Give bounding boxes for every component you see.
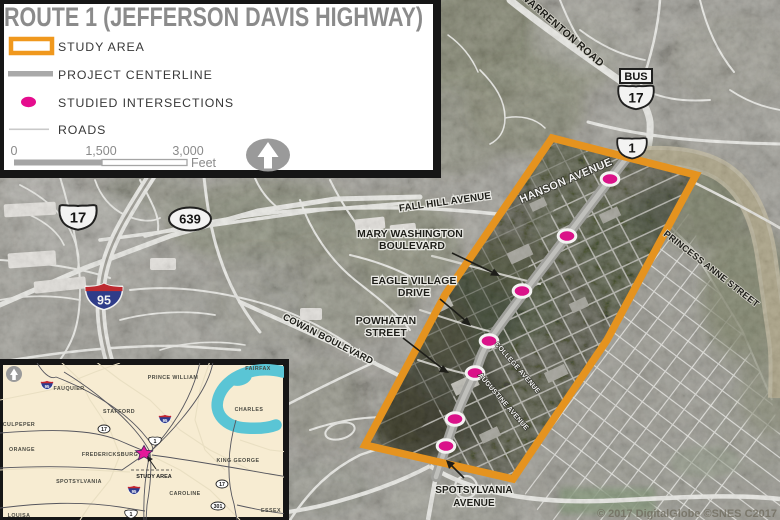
svg-text:ROADS: ROADS: [58, 123, 106, 137]
svg-text:17: 17: [219, 482, 225, 488]
svg-text:STUDY AREA: STUDY AREA: [58, 40, 145, 54]
svg-text:STUDIED INTERSECTIONS: STUDIED INTERSECTIONS: [58, 96, 234, 110]
svg-text:0: 0: [11, 144, 18, 158]
svg-text:301: 301: [214, 504, 223, 510]
svg-text:95: 95: [45, 384, 50, 389]
svg-text:Feet: Feet: [191, 156, 217, 170]
svg-text:FAUQUIER: FAUQUIER: [54, 386, 85, 392]
svg-text:ROUTE 1 (JEFFERSON DAVIS HIGHW: ROUTE 1 (JEFFERSON DAVIS HIGHWAY): [4, 2, 423, 32]
svg-text:FAIRFAX: FAIRFAX: [245, 366, 271, 372]
svg-text:CHARLES: CHARLES: [235, 407, 264, 413]
svg-text:ESSEX: ESSEX: [261, 508, 281, 514]
svg-text:STUDY AREA: STUDY AREA: [136, 474, 171, 480]
svg-text:CAROLINE: CAROLINE: [169, 491, 200, 497]
svg-text:1,500: 1,500: [85, 144, 116, 158]
svg-text:CULPEPER: CULPEPER: [3, 422, 35, 428]
svg-text:FREDERICKSBURG: FREDERICKSBURG: [82, 452, 138, 458]
svg-text:95: 95: [132, 489, 137, 494]
svg-text:LOUISA: LOUISA: [8, 513, 31, 519]
svg-text:95: 95: [163, 418, 168, 423]
svg-text:PRINCE WILLIAM: PRINCE WILLIAM: [148, 375, 199, 381]
svg-text:STAFFORD: STAFFORD: [103, 409, 135, 415]
svg-text:SPOTSYLVANIA: SPOTSYLVANIA: [56, 479, 102, 485]
svg-text:1: 1: [130, 512, 133, 518]
svg-text:1: 1: [154, 439, 157, 445]
svg-text:PROJECT CENTERLINE: PROJECT CENTERLINE: [58, 68, 213, 82]
svg-text:KING GEORGE: KING GEORGE: [217, 458, 260, 464]
svg-text:17: 17: [101, 427, 107, 433]
svg-text:ORANGE: ORANGE: [9, 447, 35, 453]
